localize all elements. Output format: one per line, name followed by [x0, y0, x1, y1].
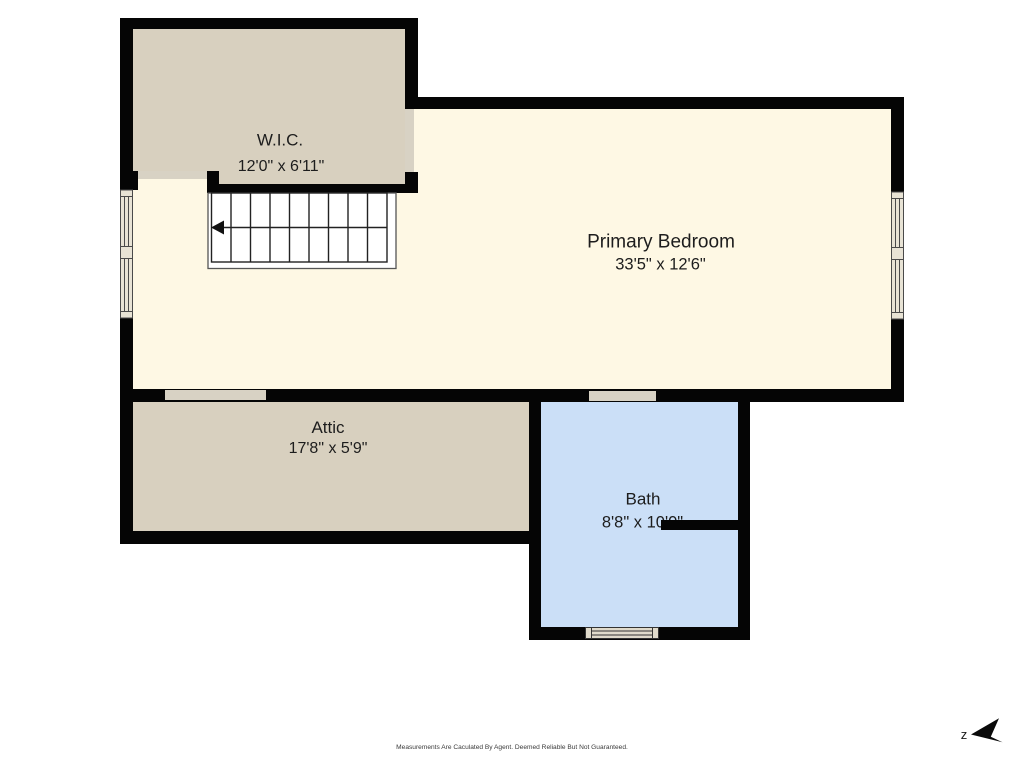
svg-text:Bath: Bath — [626, 490, 661, 509]
svg-text:17'8" x 5'9": 17'8" x 5'9" — [289, 440, 368, 457]
svg-text:Primary Bedroom: Primary Bedroom — [587, 232, 735, 253]
svg-text:z: z — [961, 727, 968, 742]
svg-text:Attic: Attic — [311, 418, 345, 437]
svg-text:12'0" x 6'11": 12'0" x 6'11" — [238, 158, 325, 175]
svg-text:W.I.C.: W.I.C. — [257, 131, 303, 150]
svg-text:33'5" x 12'6": 33'5" x 12'6" — [615, 256, 706, 274]
svg-text:Measurements Are Caculated By: Measurements Are Caculated By Agent. Dee… — [396, 744, 628, 751]
